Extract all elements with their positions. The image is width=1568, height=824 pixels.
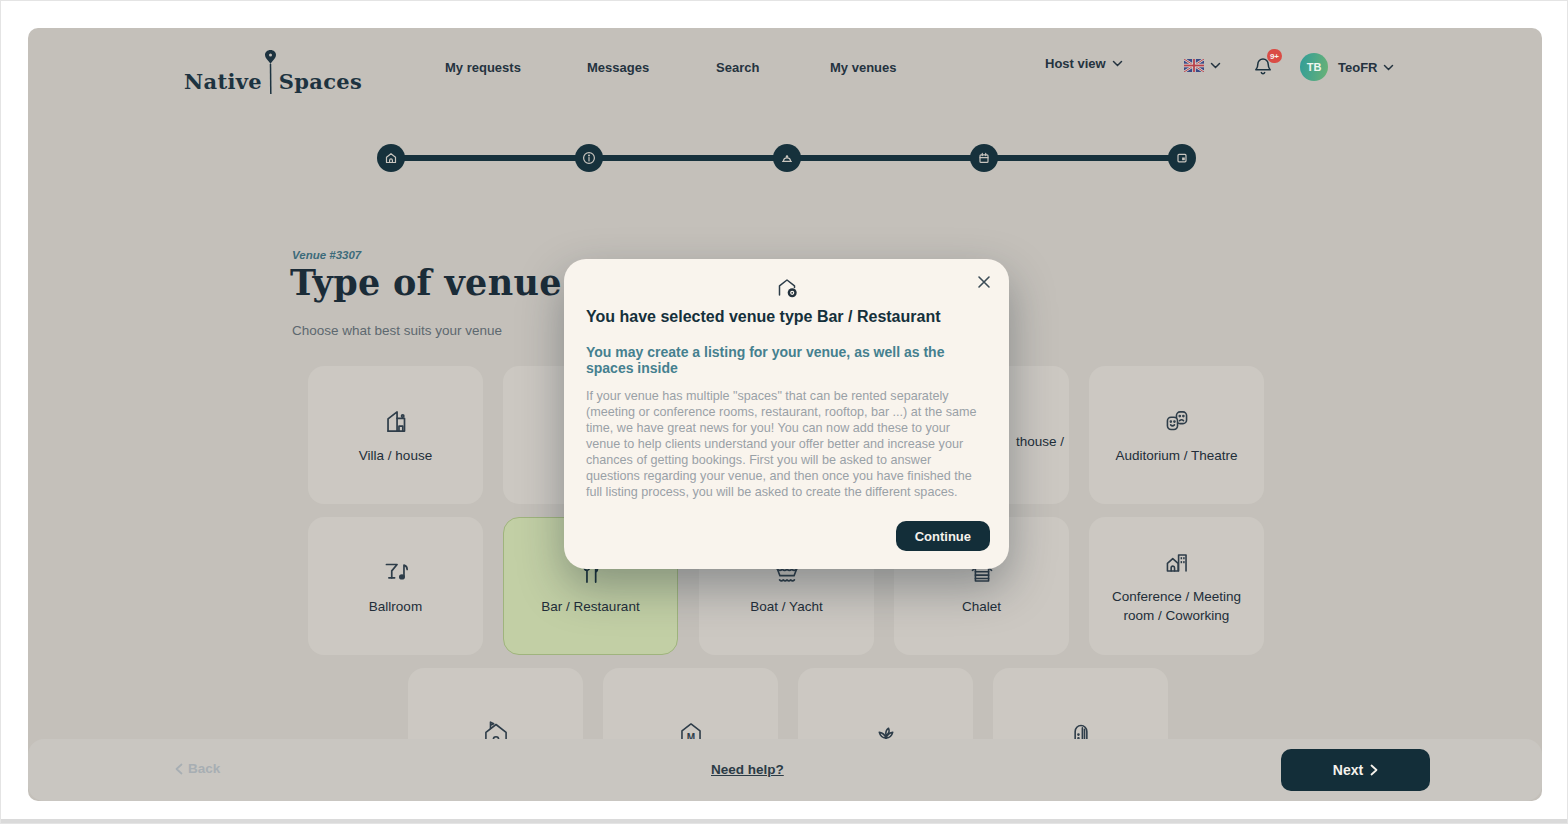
picture-card-icon [1174, 150, 1190, 166]
stepper-step-3[interactable] [773, 144, 801, 172]
house-add-icon [773, 275, 800, 300]
page-subtitle: Choose what best suits your venue [292, 323, 502, 338]
cloche-icon [779, 150, 795, 166]
venue-type-label: Auditorium / Theatre [1106, 447, 1246, 466]
chevron-down-icon [1383, 64, 1394, 71]
close-icon [977, 275, 991, 289]
venue-type-card-conference-meeting-coworking[interactable]: Conference / Meeting room / Coworking [1089, 517, 1264, 655]
modal-body-text: If your venue has multiple "spaces" that… [586, 389, 987, 501]
venue-type-label: Chalet [953, 598, 1010, 617]
map-pin-icon [263, 48, 278, 96]
back-label: Back [188, 761, 220, 776]
host-view-label: Host view [1045, 56, 1106, 71]
nav-my-requests[interactable]: My requests [445, 60, 521, 75]
logo-text-spaces: Spaces [279, 69, 362, 94]
host-view-dropdown[interactable]: Host view [1045, 56, 1123, 71]
browser-frame: Native Spaces My requests Messages Searc… [0, 0, 1568, 824]
chevron-down-icon [1112, 60, 1123, 67]
avatar: TB [1300, 53, 1328, 81]
stepper-step-1[interactable] [377, 144, 405, 172]
modern-house-icon [379, 405, 413, 439]
window-bottom-edge [1, 819, 1567, 823]
user-menu[interactable]: TB TeoFR [1300, 53, 1394, 81]
notification-badge: 9+ [1267, 49, 1282, 63]
notifications-button[interactable]: 9+ [1253, 56, 1273, 81]
modal-title: You have selected venue type Bar / Resta… [586, 308, 987, 326]
venue-type-label: Conference / Meeting room / Coworking [1089, 588, 1264, 626]
theatre-masks-icon [1160, 405, 1194, 439]
house-office-building-icon [1160, 546, 1194, 580]
nav-my-venues[interactable]: My venues [830, 60, 896, 75]
venue-reference: Venue #3307 [292, 249, 361, 261]
top-navbar: Native Spaces My requests Messages Searc… [28, 28, 1542, 106]
info-icon [581, 150, 597, 166]
house-icon [383, 150, 399, 166]
language-selector[interactable] [1184, 59, 1221, 72]
venue-type-card-ballroom[interactable]: Ballroom [308, 517, 483, 655]
venue-type-label-fragment: thouse / [1016, 434, 1064, 449]
stepper-step-5[interactable] [1168, 144, 1196, 172]
nav-search[interactable]: Search [716, 60, 759, 75]
venue-type-confirmation-modal: You have selected venue type Bar / Resta… [564, 259, 1009, 569]
next-label: Next [1333, 762, 1363, 778]
chevron-right-icon [1370, 764, 1378, 776]
venue-type-card-villa-house[interactable]: Villa / house [308, 366, 483, 504]
venue-type-label: Boat / Yacht [741, 598, 831, 617]
page-title: Type of venue [290, 262, 562, 303]
footer-bar: Back Need help? Next [28, 739, 1542, 801]
back-button[interactable]: Back [175, 761, 220, 776]
stepper-step-2[interactable] [575, 144, 603, 172]
modal-close-button[interactable] [975, 273, 993, 291]
app-screen: Native Spaces My requests Messages Searc… [28, 28, 1542, 801]
modal-subtitle: You may create a listing for your venue,… [586, 344, 981, 376]
chevron-left-icon [175, 763, 183, 775]
venue-type-label: Ballroom [360, 598, 431, 617]
stepper-step-4[interactable] [970, 144, 998, 172]
martini-music-note-icon [379, 556, 413, 590]
user-name: TeoFR [1338, 60, 1377, 75]
venue-type-label: Villa / house [350, 447, 441, 466]
next-button[interactable]: Next [1281, 749, 1430, 791]
chevron-down-icon [1210, 62, 1221, 69]
continue-button[interactable]: Continue [896, 521, 990, 551]
logo-text-native: Native [184, 69, 262, 94]
need-help-link[interactable]: Need help? [711, 762, 784, 777]
venue-type-card-auditorium-theatre[interactable]: Auditorium / Theatre [1089, 366, 1264, 504]
venue-type-label: Bar / Restaurant [532, 598, 648, 617]
logo[interactable]: Native Spaces [184, 48, 362, 94]
uk-flag-icon [1184, 59, 1204, 72]
nav-messages[interactable]: Messages [587, 60, 649, 75]
calendar-icon [976, 150, 992, 166]
